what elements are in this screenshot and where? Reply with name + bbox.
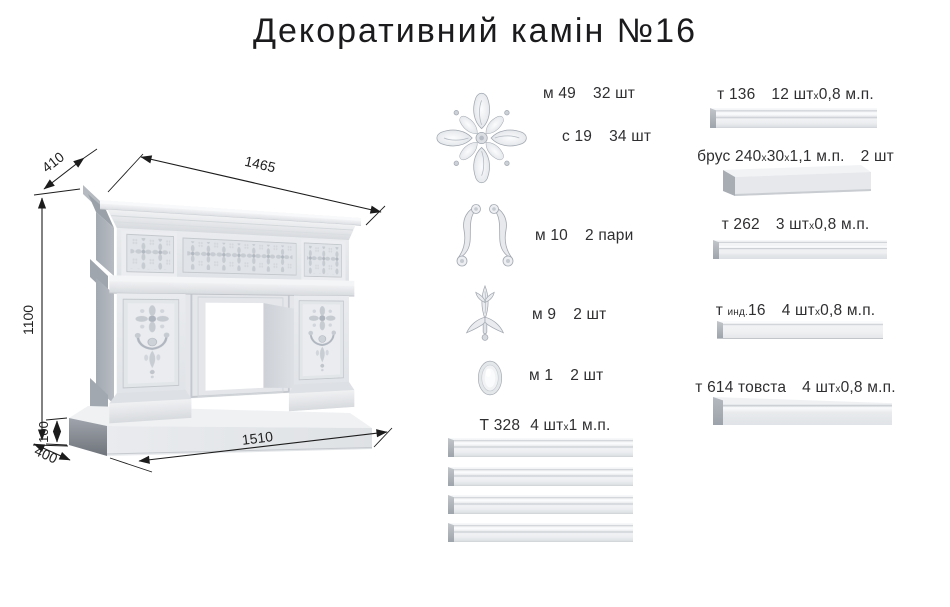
molding-strip-tind16 <box>717 321 883 339</box>
ornament-row-c19: с 19 34 шт <box>562 128 651 146</box>
ornament-row-m9: м 9 2 шт <box>532 306 606 324</box>
ornament-row-m49: м 49 32 шт <box>543 85 635 103</box>
molding-code: т 136 <box>717 86 755 104</box>
molding-strip-t136 <box>710 108 877 128</box>
ornament-row-m1: м 1 2 шт <box>529 367 603 385</box>
molding-row-tind16: т инд.16 4 штх0,8 м.п. <box>683 302 908 320</box>
molding-qty: 4 штх0,8 м.п. <box>802 379 896 397</box>
ornament-qty: 32 шт <box>593 85 635 103</box>
ornament-qty: 34 шт <box>609 128 651 146</box>
fireplace-front-face <box>100 200 361 426</box>
oval-medallion-image <box>477 357 503 399</box>
molding-row-t328: Т 328 4 штх1 м.п. <box>445 417 645 435</box>
molding-row-t614: т 614 товста 4 штх0,8 м.п. <box>683 379 908 397</box>
molding-row-t136: т 136 12 штх0,8 м.п. <box>683 86 908 104</box>
ornament-code: м 49 <box>543 85 576 103</box>
rosette-ornament-image <box>427 83 540 193</box>
molding-qty: 4 штх0,8 м.п. <box>782 302 876 320</box>
leaf-ornament-image <box>462 282 508 345</box>
specification-sheet: { "page": { "title": "Декоративний камін… <box>0 0 950 607</box>
molding-qty: 12 штх0,8 м.п. <box>771 86 873 104</box>
ornament-row-m10: м 10 2 пари <box>535 227 633 245</box>
molding-code: т 614 товста <box>695 379 786 397</box>
dim-label-base-height: 100 <box>36 421 51 443</box>
molding-strip-t328-4 <box>448 523 633 542</box>
molding-qty: 3 штх0,8 м.п. <box>776 216 870 234</box>
ornament-qty: 2 шт <box>570 367 603 385</box>
dim-label-mantel-depth: 410 <box>39 148 67 175</box>
molding-strip-t328-2 <box>448 467 633 486</box>
molding-strip-t328-3 <box>448 495 633 514</box>
ornament-code: м 1 <box>529 367 553 385</box>
beam-image <box>715 164 873 198</box>
molding-row-t262: т 262 3 штх0,8 м.п. <box>683 216 908 234</box>
molding-strip-t262 <box>713 240 887 259</box>
ornament-qty: 2 шт <box>573 306 606 324</box>
molding-code: Т 328 <box>480 417 521 435</box>
molding-strip-t328-1 <box>448 438 633 457</box>
ornament-code: м 9 <box>532 306 556 324</box>
molding-code: т 262 <box>722 216 760 234</box>
ornament-code: м 10 <box>535 227 568 245</box>
molding-qty: 4 штх1 м.п. <box>530 417 610 435</box>
molding-code: т инд.16 <box>716 302 766 320</box>
ornament-qty: 2 пари <box>585 227 633 245</box>
molding-strip-t614 <box>713 397 892 425</box>
dim-label-mantel-width: 1465 <box>243 153 277 176</box>
ornament-code: с 19 <box>562 128 592 146</box>
scroll-pair-ornament-image <box>453 200 517 270</box>
dim-label-height: 1100 <box>20 305 36 335</box>
